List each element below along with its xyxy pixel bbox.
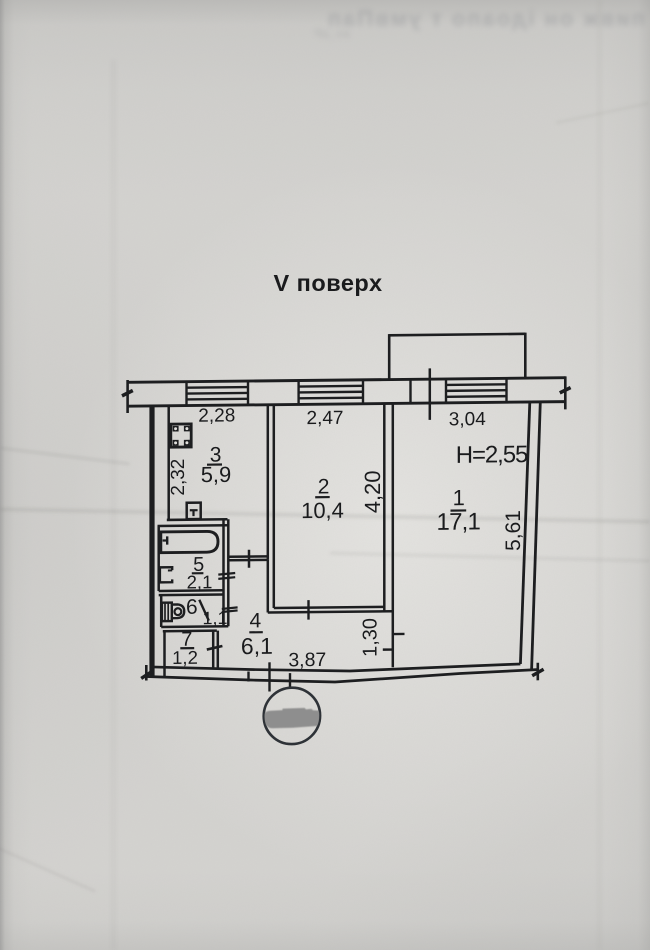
svg-text:3,04: 3,04 [449, 409, 486, 430]
svg-text:2,28: 2,28 [198, 405, 235, 426]
svg-text:2,47: 2,47 [307, 408, 344, 429]
svg-text:1: 1 [453, 485, 465, 510]
svg-text:H=2,55: H=2,55 [456, 441, 528, 469]
svg-text:V поверх: V поверх [273, 270, 382, 296]
svg-text:10,4: 10,4 [301, 498, 344, 523]
svg-text:2,1: 2,1 [187, 571, 213, 592]
svg-text:4,20: 4,20 [360, 470, 385, 513]
svg-text:5,61: 5,61 [502, 510, 525, 551]
svg-text:4: 4 [249, 609, 261, 632]
svg-text:1,2: 1,2 [172, 647, 198, 668]
svg-text:1,1: 1,1 [202, 608, 227, 628]
svg-text:2,32: 2,32 [168, 459, 189, 496]
svg-text:3,87: 3,87 [288, 649, 326, 671]
svg-text:1,30: 1,30 [360, 618, 382, 657]
svg-text:6: 6 [186, 596, 198, 619]
svg-text:6,1: 6,1 [241, 633, 273, 659]
svg-text:2: 2 [318, 475, 330, 498]
svg-text:17,1: 17,1 [437, 508, 481, 535]
